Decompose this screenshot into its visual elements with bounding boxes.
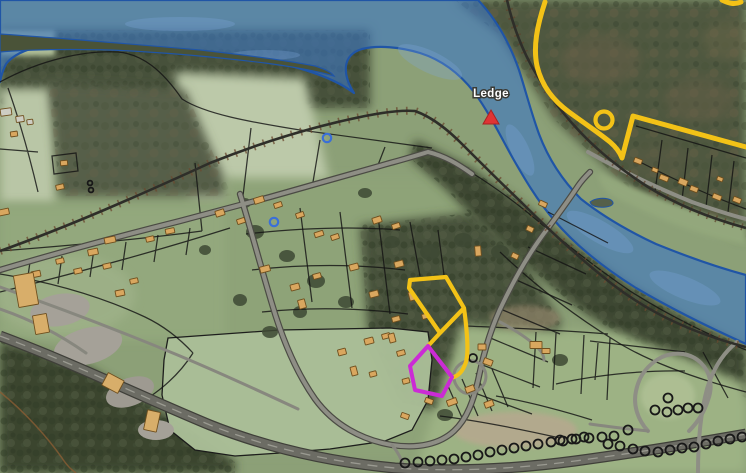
building [60,160,67,166]
map-canvas[interactable]: Ledge [0,0,746,473]
building [27,119,34,125]
building [0,108,12,116]
building [478,344,486,350]
ledge-label: Ledge [473,88,509,100]
building [56,258,65,265]
building [74,268,83,275]
building [16,115,25,122]
building [10,131,18,137]
river-island [590,198,613,207]
building [542,349,550,354]
building [130,278,139,285]
building [530,342,542,349]
building [475,246,482,256]
map-viewport[interactable]: Ledge [0,0,746,473]
building [103,263,112,270]
building [56,184,65,191]
building [115,289,125,297]
building [32,313,49,334]
building [146,236,155,243]
